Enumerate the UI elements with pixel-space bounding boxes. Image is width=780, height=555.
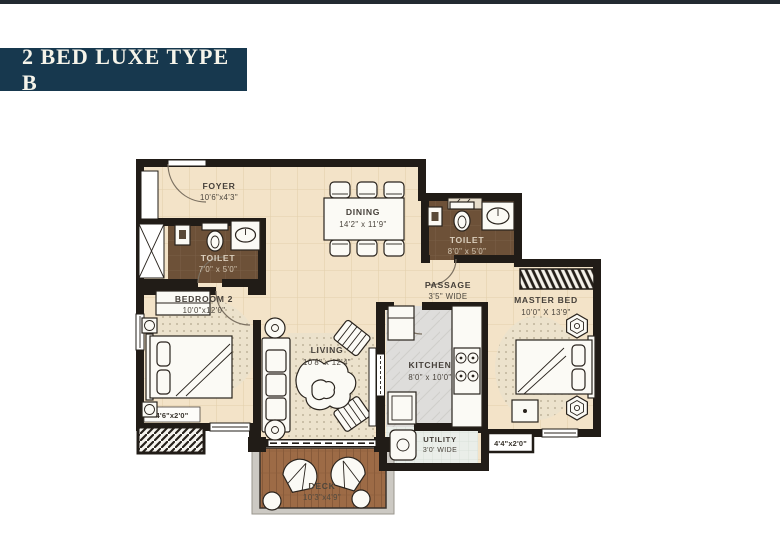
room-dims: 3'5" WIDE: [428, 292, 467, 301]
floor-plan: FOYER 10'6"x4'3" DINING 14'2" x 11'9" TO…: [0, 0, 780, 555]
pillow: [572, 369, 585, 390]
foyer-cupboard: [141, 171, 158, 219]
wc-tank: [202, 223, 228, 230]
hex-side-table: [567, 314, 588, 338]
pillow: [572, 345, 585, 366]
wc-tank: [450, 202, 474, 209]
plant-inner: [312, 380, 335, 400]
room-name: TOILET: [201, 253, 236, 263]
room-name: FOYER: [202, 181, 235, 191]
fridge: [388, 306, 414, 340]
room-dims: 10'0"x12'0": [183, 306, 226, 315]
ledge-dim-left: 4'6"x2'0": [156, 411, 189, 420]
room-name: LIVING: [311, 345, 344, 355]
room-dims: 8'0" x 5'0": [448, 247, 487, 256]
room-dims: 3'0' WIDE: [423, 447, 457, 454]
living-tv-unit: [369, 348, 376, 426]
deck-side-table: [263, 492, 281, 510]
ledge-hatch-left: [138, 427, 204, 453]
room-name: PASSAGE: [425, 280, 471, 290]
room-name: UTILITY: [423, 435, 457, 444]
round-side-table: [265, 420, 285, 440]
room-dims: 10'3"x4'9": [303, 493, 341, 502]
room-dims: 10'0" X 13'9": [521, 308, 570, 317]
room-name: TOILET: [450, 235, 485, 245]
room-dims: 10'6"x4'3": [200, 193, 238, 202]
room-name: DINING: [346, 207, 380, 217]
pillow: [157, 370, 170, 394]
hex-side-table: [567, 396, 588, 420]
ledge-dim-right: 4'4"x2'0": [494, 439, 527, 448]
master-wardrobe-strip: [520, 269, 594, 289]
room-name: DECK: [308, 481, 335, 491]
room-dims: 8'0" x 10'0": [408, 373, 451, 382]
washing-machine: [390, 430, 416, 460]
room-name: KITCHEN: [408, 360, 451, 370]
deck-side-table: [352, 490, 370, 508]
room-name: BEDROOM 2: [175, 294, 233, 304]
page: 2 BED LUXE TYPE B: [0, 0, 780, 555]
kitchen-window: [377, 354, 385, 396]
room-dims: 14'2" x 11'9": [339, 220, 386, 229]
dining-table: [324, 198, 404, 240]
stove-hob-icon: [454, 348, 480, 394]
entrance-gap: [168, 160, 206, 166]
room-name: MASTER BED: [514, 295, 578, 305]
room-dims: 10'8" x 12'4": [303, 358, 351, 367]
utility-furniture: [390, 430, 416, 460]
room-dims: 7'0" x 5'0": [199, 265, 238, 274]
pillow: [157, 342, 170, 366]
round-side-table: [265, 318, 285, 338]
